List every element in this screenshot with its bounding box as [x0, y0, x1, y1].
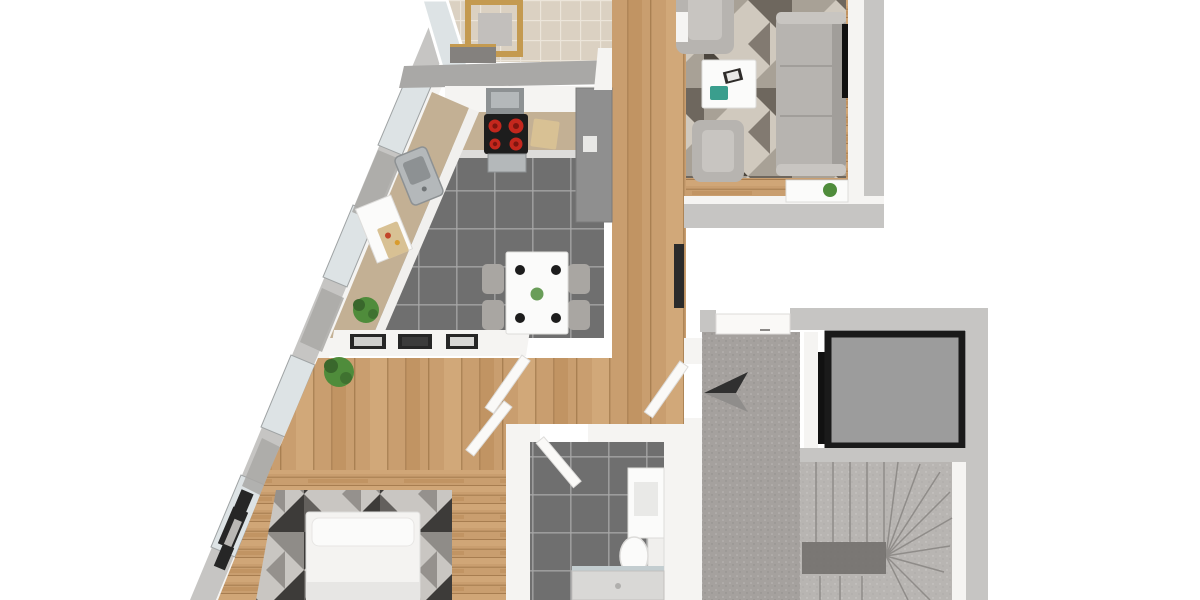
bed	[306, 512, 420, 600]
outer-wall-east	[864, 0, 884, 212]
oven-front	[488, 154, 526, 172]
sofa	[776, 12, 846, 176]
stair-core	[684, 308, 988, 600]
bedroom-bathroom-wall	[506, 424, 530, 600]
outer-wall-right	[966, 308, 988, 600]
cutting-board	[530, 118, 560, 149]
stove-cooktop	[484, 114, 528, 154]
wall-pictures	[350, 334, 478, 349]
chair-cushion	[478, 13, 512, 46]
kitchen	[330, 86, 612, 356]
teal-notebook	[710, 86, 728, 100]
bench-seat	[450, 46, 496, 63]
radiator	[674, 244, 684, 308]
sideboard-plant	[823, 183, 837, 197]
fridge-dispenser	[583, 136, 597, 152]
floor-plan-canvas	[0, 0, 1200, 600]
corridor-landing-wall	[684, 338, 702, 364]
dining-set	[482, 252, 590, 334]
bathroom-north-wall	[588, 424, 666, 442]
dining-chair	[482, 264, 504, 294]
stair-stringer	[952, 462, 966, 600]
elevator-car	[828, 334, 962, 446]
fridge-tall-unit	[576, 88, 612, 222]
bathroom-east-wall	[664, 424, 684, 600]
core-north-wall	[700, 310, 716, 332]
table-centerpiece	[531, 288, 544, 301]
stair-void-shadow	[802, 542, 886, 574]
sofa-armrest	[776, 12, 846, 24]
balcony-bench	[450, 44, 496, 63]
coffee-table	[702, 60, 756, 108]
hallway-plant	[324, 357, 354, 387]
elevator-side-wall	[804, 332, 818, 448]
bed-duvet-fold	[306, 582, 420, 600]
dining-chair	[482, 300, 504, 330]
bathroom	[516, 424, 684, 600]
sideboard	[786, 180, 848, 202]
core-north-wall	[790, 308, 988, 330]
sofa-armrest	[776, 164, 846, 176]
elevator-south-wall	[800, 448, 988, 462]
corridor-landing-wall	[684, 418, 702, 600]
wall-stub	[676, 12, 688, 42]
shower-glass	[572, 566, 664, 571]
living-room-east-wall	[848, 0, 864, 208]
kitchen-plant	[353, 297, 379, 323]
floor-plan-svg	[0, 0, 1200, 600]
vanity-basin	[634, 482, 658, 516]
staircase	[800, 462, 966, 600]
landing-carpet	[702, 332, 800, 600]
bench-frame	[450, 44, 496, 47]
bed-pillows	[312, 518, 414, 546]
range-hood-body	[491, 92, 519, 108]
bathroom-north-wall	[516, 424, 540, 442]
dining-chair	[568, 264, 590, 294]
shower-drain	[615, 583, 621, 589]
living-room-south-wall	[684, 204, 884, 228]
dining-chair	[568, 300, 590, 330]
armchair	[692, 120, 744, 182]
apartment-entry-door	[716, 314, 790, 334]
